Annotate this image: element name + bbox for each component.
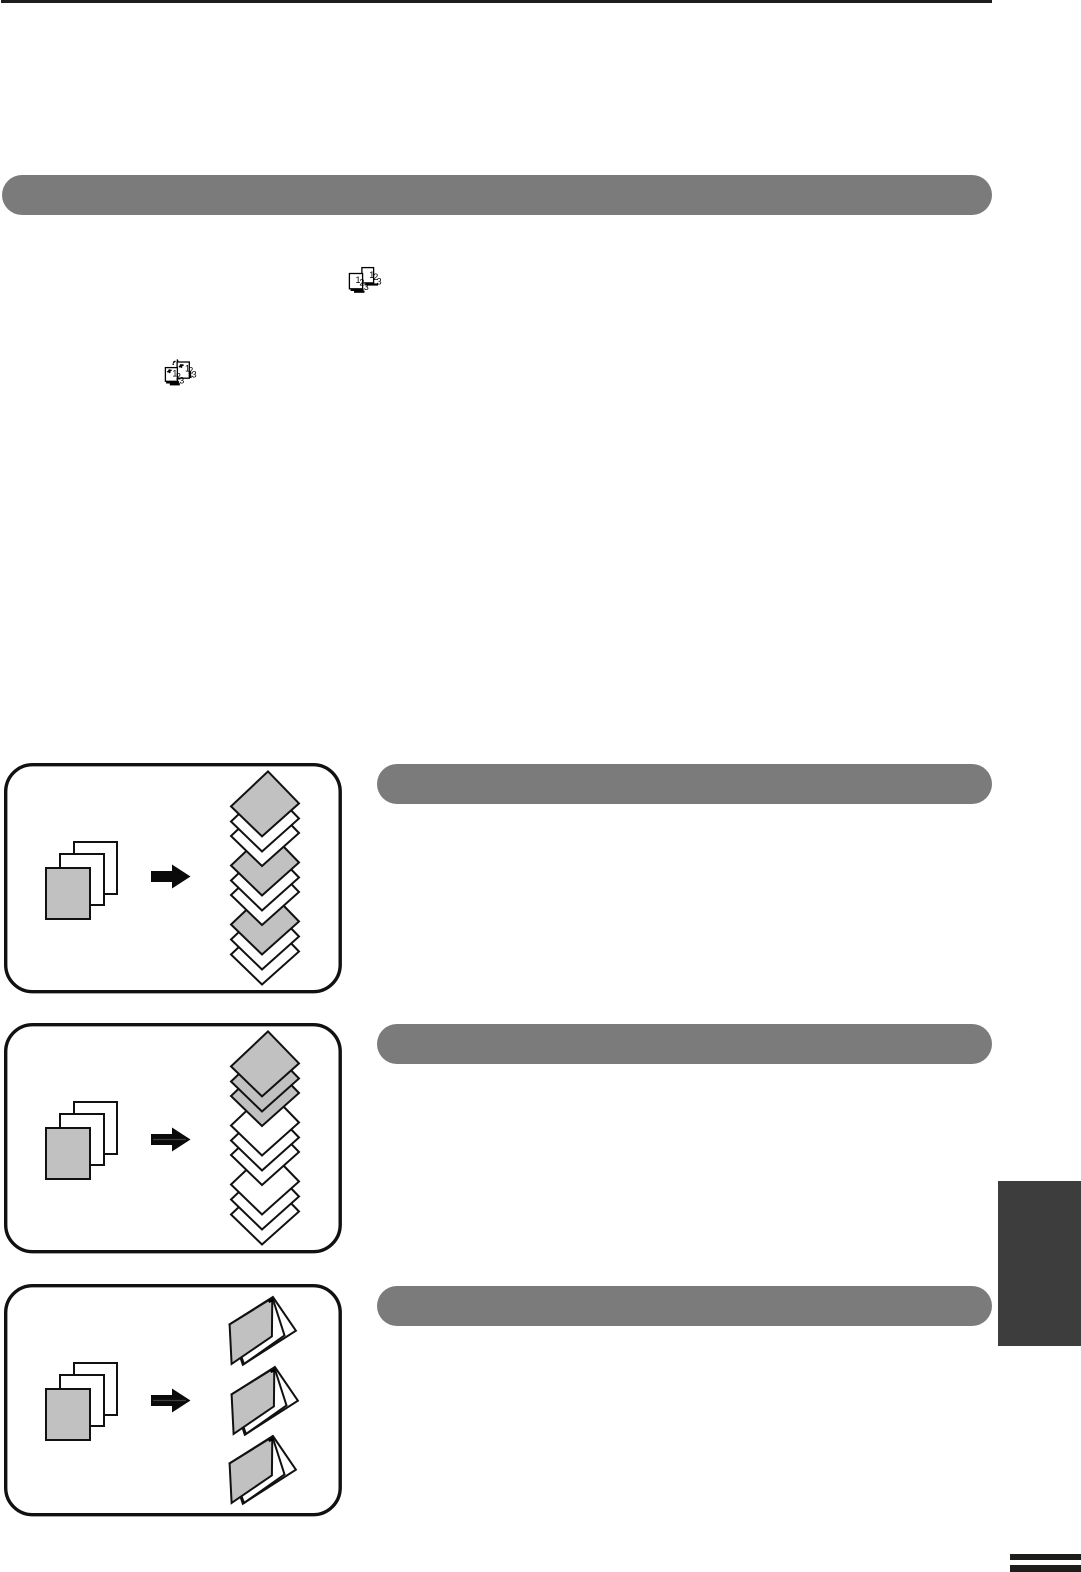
svg-text:3: 3 — [192, 370, 197, 380]
svg-text:3: 3 — [377, 276, 382, 286]
svg-text:3: 3 — [179, 375, 184, 385]
svg-text:3: 3 — [364, 282, 369, 292]
